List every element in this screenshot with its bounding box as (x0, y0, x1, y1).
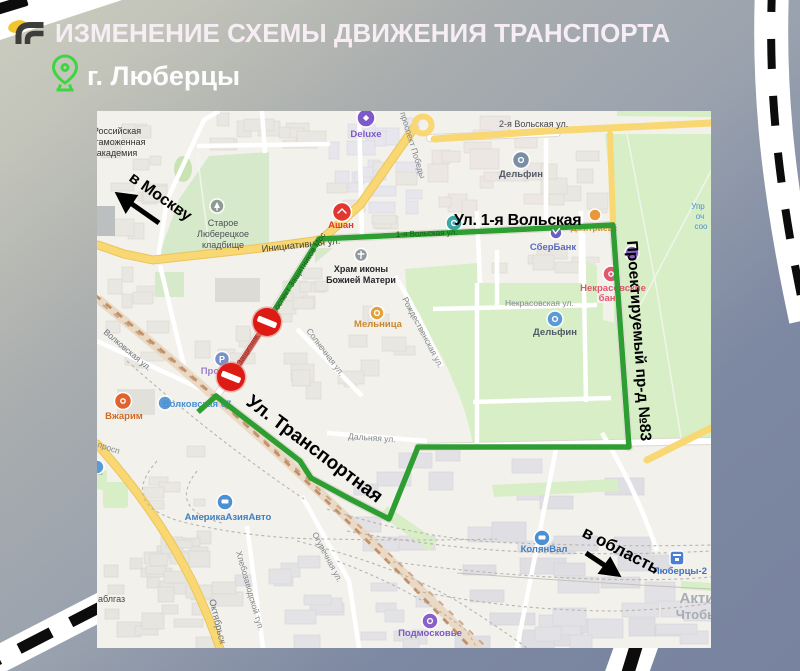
svg-text:Deluxe: Deluxe (350, 129, 381, 140)
svg-text:Дельфин: Дельфин (533, 327, 577, 338)
svg-text:таможенная: таможенная (97, 137, 146, 147)
svg-text:Мельница: Мельница (354, 319, 403, 330)
svg-text:КолянВал: КолянВал (521, 544, 568, 555)
svg-text:академия: академия (97, 148, 137, 158)
svg-text:Дельфин: Дельфин (499, 169, 543, 180)
svg-text:Божией Матери: Божией Матери (326, 275, 396, 285)
svg-text:Ул. 1-я Вольская: Ул. 1-я Вольская (454, 212, 581, 229)
svg-text:аблгаз: аблгаз (98, 594, 125, 604)
svg-text:Российская: Российская (97, 126, 141, 136)
svg-text:Подмосковье: Подмосковье (398, 628, 462, 639)
svg-text:Некрасовская ул.: Некрасовская ул. (505, 298, 574, 308)
svg-text:АмерикаАзияАвто: АмерикаАзияАвто (185, 512, 272, 523)
svg-text:оч: оч (696, 212, 704, 221)
svg-text:Ашан: Ашан (328, 220, 354, 231)
svg-text:P: P (219, 355, 225, 365)
svg-text:Люберцы-2: Люберцы-2 (653, 566, 707, 577)
svg-text:Чтобы: Чтобы (676, 607, 711, 622)
svg-text:Старое: Старое (208, 218, 239, 228)
svg-text:кладбище: кладбище (202, 240, 244, 250)
svg-text:соо: соо (695, 222, 709, 231)
svg-text:Акти: Акти (680, 590, 711, 607)
svg-text:Храм иконы: Храм иконы (334, 264, 389, 274)
svg-text:СберБанк: СберБанк (530, 242, 577, 253)
svg-text:Упр: Упр (691, 202, 705, 211)
svg-text:2-я Вольская ул.: 2-я Вольская ул. (499, 119, 568, 129)
svg-text:Вжарим: Вжарим (105, 411, 143, 422)
svg-text:Люберецкое: Люберецкое (197, 229, 249, 239)
